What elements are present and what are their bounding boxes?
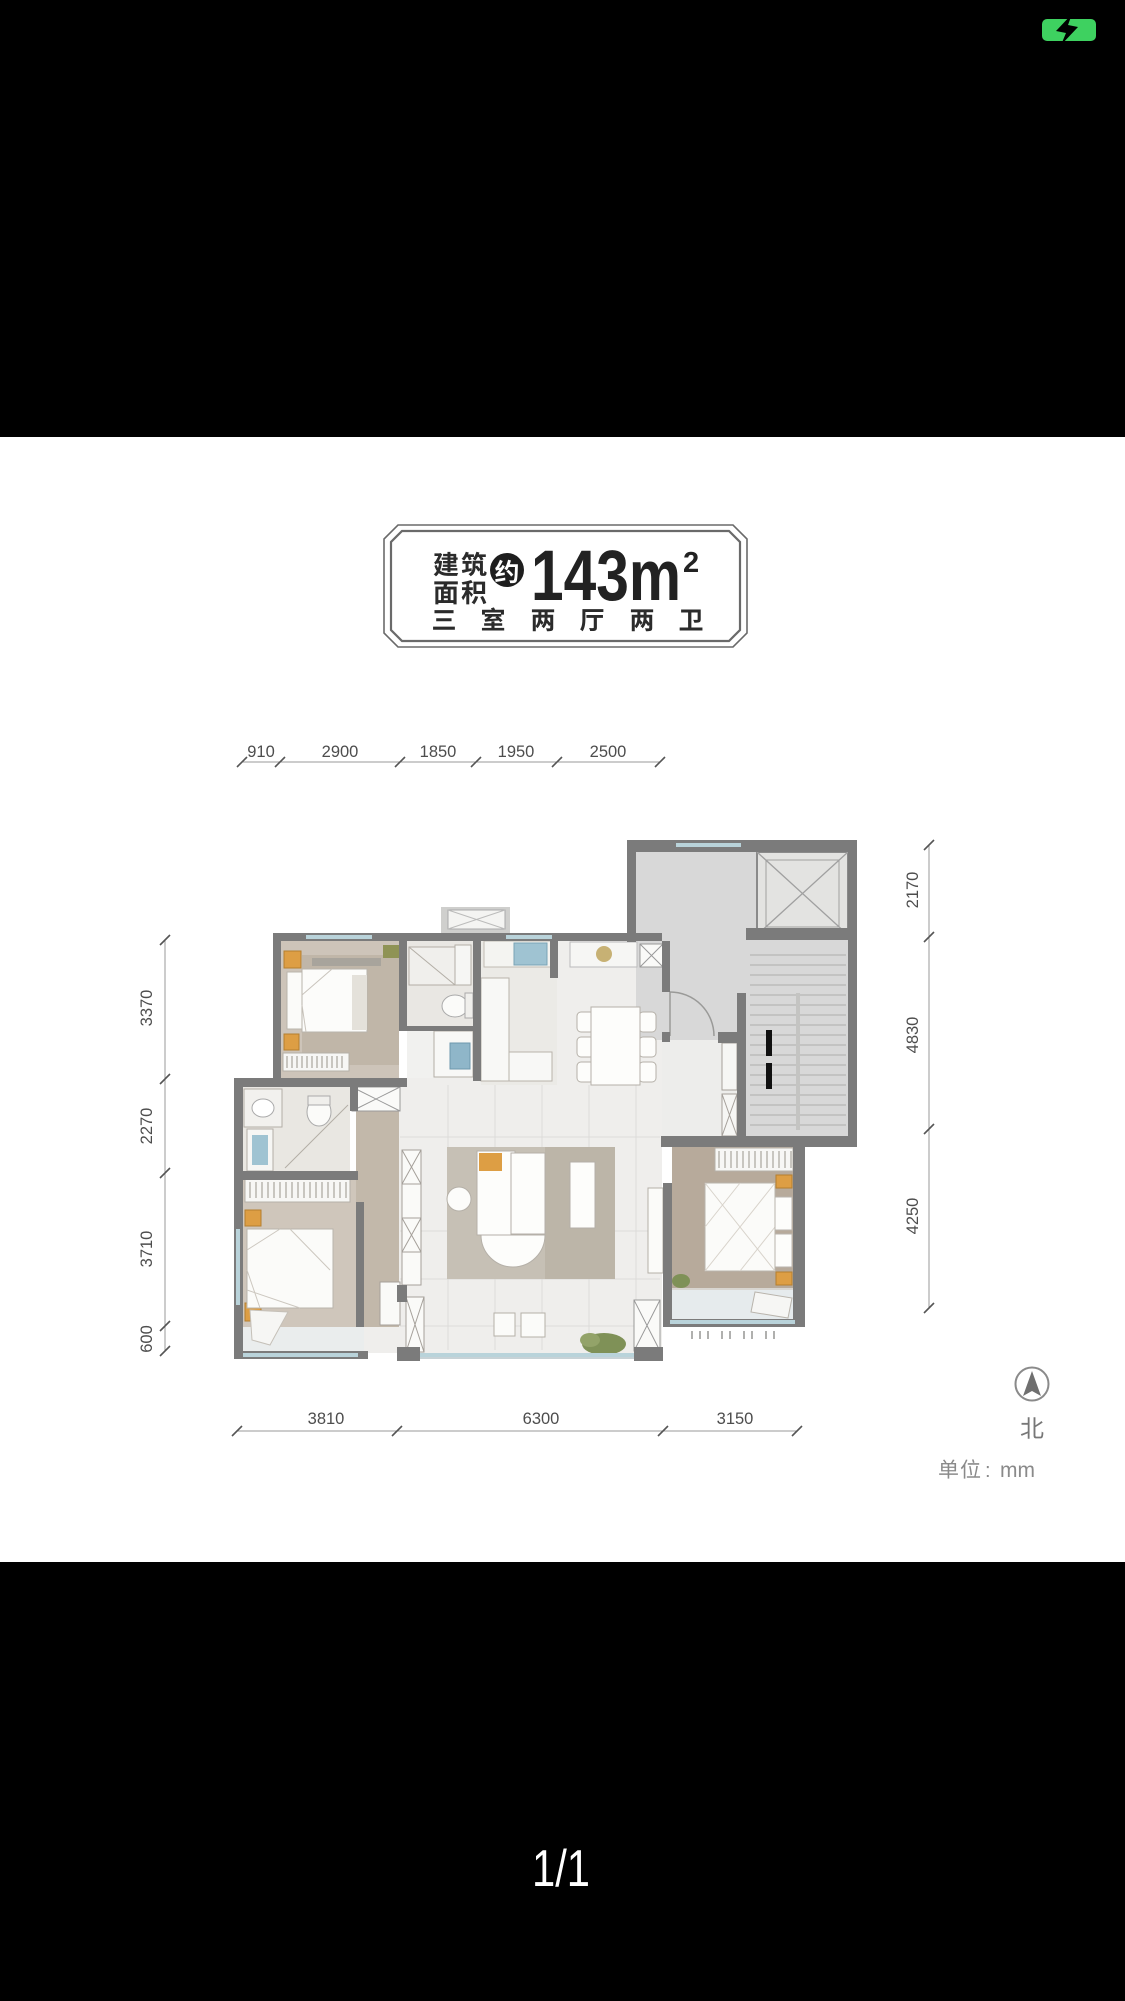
svg-text:3370: 3370	[138, 990, 156, 1027]
svg-text:2170: 2170	[904, 872, 922, 909]
svg-text:3150: 3150	[717, 1410, 754, 1428]
svg-text:6300: 6300	[523, 1410, 560, 1428]
svg-text:143m: 143m	[531, 537, 681, 616]
svg-text:mm: mm	[1000, 1459, 1035, 1482]
svg-text:2900: 2900	[322, 743, 359, 761]
svg-text:2: 2	[683, 547, 699, 579]
svg-text:1950: 1950	[498, 743, 535, 761]
svg-text:2270: 2270	[138, 1108, 156, 1145]
svg-text:1/1: 1/1	[532, 1840, 590, 1898]
svg-text:4250: 4250	[904, 1198, 922, 1235]
svg-text::: :	[985, 1460, 991, 1482]
svg-text:1850: 1850	[420, 743, 457, 761]
svg-text:2500: 2500	[590, 743, 627, 761]
svg-text:3710: 3710	[138, 1231, 156, 1268]
svg-text:4830: 4830	[904, 1017, 922, 1054]
svg-text:600: 600	[138, 1325, 156, 1353]
svg-text:910: 910	[247, 743, 275, 761]
svg-text:3810: 3810	[308, 1410, 345, 1428]
